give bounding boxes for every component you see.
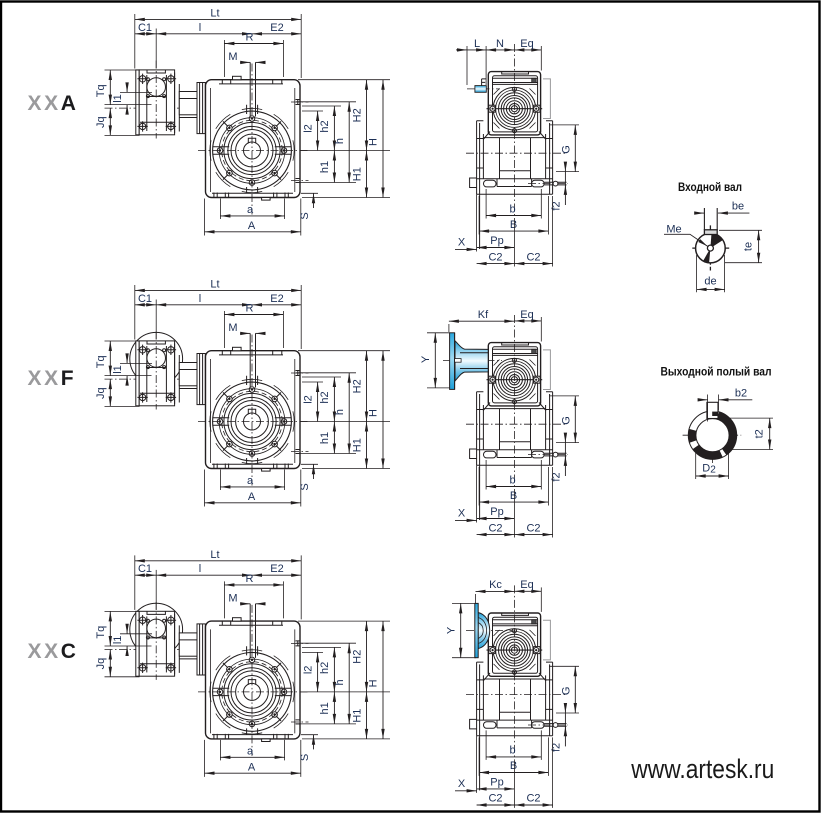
svg-text:L: L	[474, 38, 480, 50]
svg-text:www.artesk.ru: www.artesk.ru	[630, 754, 774, 784]
svg-text:Me: Me	[666, 223, 681, 235]
svg-text:Y: Y	[420, 355, 432, 363]
svg-text:XXA: XXA	[28, 92, 79, 115]
svg-text:Выходной полый вал: Выходной полый вал	[661, 365, 772, 379]
svg-text:Kf: Kf	[478, 309, 489, 321]
svg-text:Входной вал: Входной вал	[678, 180, 742, 194]
svg-text:XXF: XXF	[28, 367, 77, 390]
svg-text:b2: b2	[735, 387, 747, 399]
svg-text:be: be	[732, 201, 744, 213]
svg-text:Y: Y	[446, 626, 458, 634]
svg-text:D2: D2	[702, 463, 716, 476]
svg-text:XXC: XXC	[28, 640, 79, 663]
svg-text:de: de	[704, 276, 716, 288]
svg-text:Kc: Kc	[489, 579, 502, 591]
svg-text:N: N	[496, 38, 504, 50]
svg-text:te: te	[743, 242, 755, 251]
svg-text:t2: t2	[754, 429, 766, 438]
